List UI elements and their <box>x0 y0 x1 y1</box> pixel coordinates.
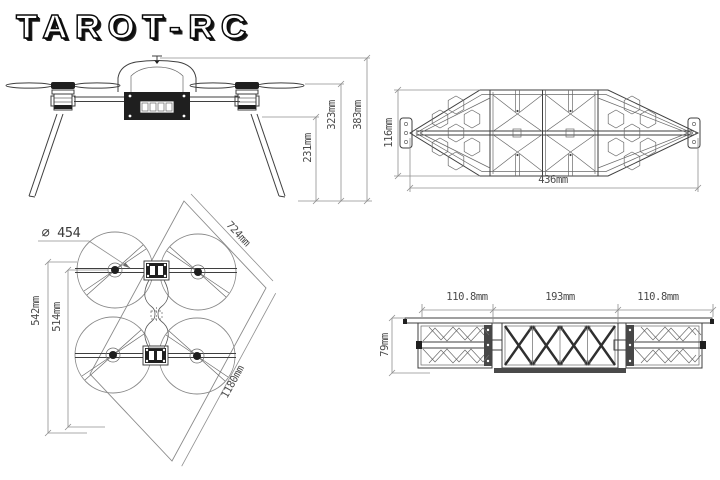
dim-label-frame-side-height: 79mm <box>379 333 391 357</box>
honeycomb-left <box>432 96 480 170</box>
dim-label-inner-span: 514mm <box>51 302 63 332</box>
brand-logo: TAROT-RC <box>16 8 253 46</box>
dim-label-leg-height: 231mm <box>302 133 314 163</box>
honeycomb-right <box>608 96 656 170</box>
dim-label-left-section: 110.8mm <box>446 291 487 303</box>
dim-label-center-section: 193mm <box>545 291 575 303</box>
dim-label-frame-height: 116mm <box>383 118 395 148</box>
dim-label-prop-height: 323mm <box>326 100 338 130</box>
dim-label-overall-height: 383mm <box>352 100 364 130</box>
dim-label-outer-span: 542mm <box>30 296 42 326</box>
dim-label-prop-diameter: ∅ 454 <box>42 225 81 241</box>
technical-drawing-sheet: TAROT-RC <box>0 0 720 480</box>
dim-label-frame-width: 436mm <box>538 174 568 186</box>
dim-label-right-section: 110.8mm <box>637 291 678 303</box>
